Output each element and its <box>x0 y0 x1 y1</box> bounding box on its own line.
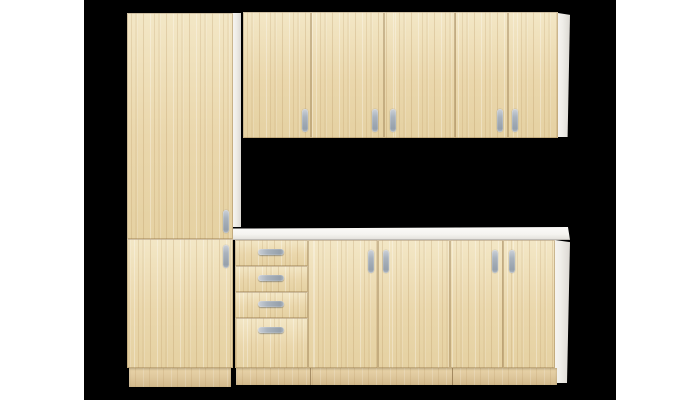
tall-upper-door-handle <box>223 210 229 233</box>
base-plinth <box>236 368 557 385</box>
base-cabinet2-left-handle <box>492 250 498 273</box>
plinth-seam <box>310 368 311 385</box>
kitchen-set-photo <box>84 0 616 400</box>
base-cabinet1-right-door <box>378 240 450 368</box>
tall-cabinet <box>127 13 233 368</box>
wall-cabinet3-right-handle <box>512 109 518 132</box>
base-cabinet2-right-door <box>503 240 555 368</box>
wall-cabinets <box>243 12 558 138</box>
tall-cabinet-side-panel <box>233 13 241 227</box>
drawer-3 <box>235 292 308 318</box>
tall-cabinet-upper-door <box>127 13 233 239</box>
base-cabinet2-right-handle <box>509 250 515 273</box>
wall-cabinet-side-panel <box>558 13 570 137</box>
drawer-3-handle <box>258 301 284 307</box>
drawer-1-handle <box>258 249 284 255</box>
drawer-2-handle <box>258 275 284 281</box>
wall-cabinet2-left-handle <box>372 109 378 132</box>
drawer-unit <box>235 240 308 368</box>
base-cabinet1-right-handle <box>383 250 389 273</box>
wall-cabinet3-left-handle <box>497 109 503 132</box>
tall-cabinet-lower-door <box>127 239 233 368</box>
base-cabinet1-left-handle <box>368 250 374 273</box>
base-cabinet2-left-door <box>450 240 503 368</box>
drawer-4 <box>235 318 308 368</box>
wall-cabinet2-left-door <box>311 12 384 138</box>
tall-cabinet-plinth <box>129 368 231 387</box>
base-cabinet1-left-door <box>308 240 378 368</box>
countertop <box>233 227 570 240</box>
plinth-seam <box>452 368 453 385</box>
base-cabinets <box>235 240 555 368</box>
drawer-1 <box>235 240 308 266</box>
wall-cabinet2-right-handle <box>390 109 396 132</box>
wall-cabinet3-right-door <box>508 12 558 138</box>
wall-cabinet1-handle <box>302 109 308 132</box>
tall-lower-door-handle <box>223 245 229 268</box>
wall-cabinet1-door <box>243 12 311 138</box>
wall-cabinet2-right-door <box>384 12 455 138</box>
base-cabinet-side-panel <box>555 240 570 383</box>
drawer-4-handle <box>258 327 284 333</box>
page-background <box>0 0 700 400</box>
wall-cabinet3-left-door <box>455 12 508 138</box>
drawer-2 <box>235 266 308 292</box>
